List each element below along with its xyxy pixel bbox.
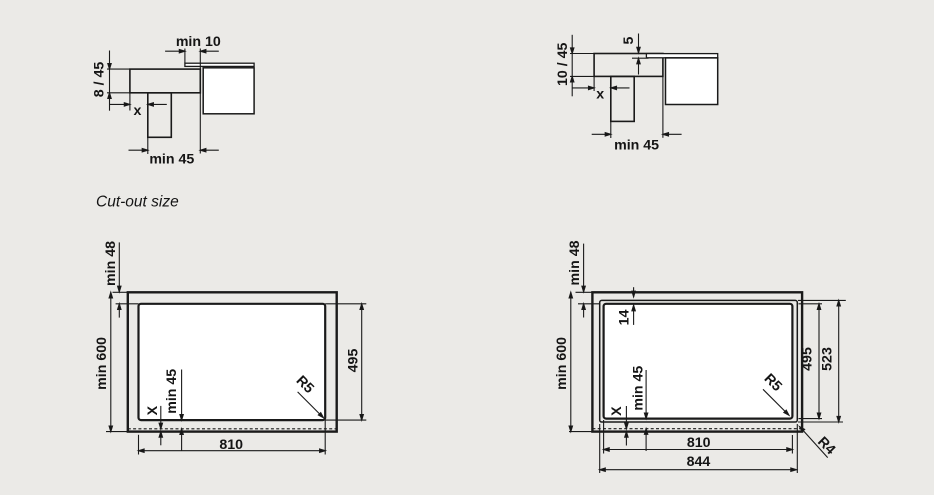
svg-text:Cut-out size: Cut-out size <box>96 194 179 211</box>
svg-text:min 45: min 45 <box>630 366 646 411</box>
svg-text:10 / 45: 10 / 45 <box>555 42 571 85</box>
svg-text:min 48: min 48 <box>567 240 583 285</box>
svg-text:min 48: min 48 <box>103 241 119 286</box>
svg-text:523: 523 <box>820 347 836 371</box>
svg-text:495: 495 <box>346 349 362 373</box>
svg-text:810: 810 <box>687 435 711 451</box>
svg-text:14: 14 <box>617 310 633 326</box>
svg-text:810: 810 <box>219 437 243 453</box>
svg-text:min 10: min 10 <box>176 34 221 50</box>
svg-text:X: X <box>145 405 161 415</box>
svg-text:x: x <box>134 103 142 119</box>
svg-text:5: 5 <box>621 37 637 45</box>
svg-text:8 / 45: 8 / 45 <box>92 62 108 98</box>
svg-text:min 45: min 45 <box>614 137 659 153</box>
svg-text:min 600: min 600 <box>554 337 570 390</box>
svg-text:min 600: min 600 <box>94 337 110 390</box>
svg-text:min 45: min 45 <box>149 152 194 168</box>
svg-text:x: x <box>596 87 604 103</box>
svg-text:495: 495 <box>800 347 816 371</box>
svg-text:min 45: min 45 <box>164 369 180 414</box>
svg-text:844: 844 <box>687 454 711 470</box>
svg-text:X: X <box>609 406 625 416</box>
